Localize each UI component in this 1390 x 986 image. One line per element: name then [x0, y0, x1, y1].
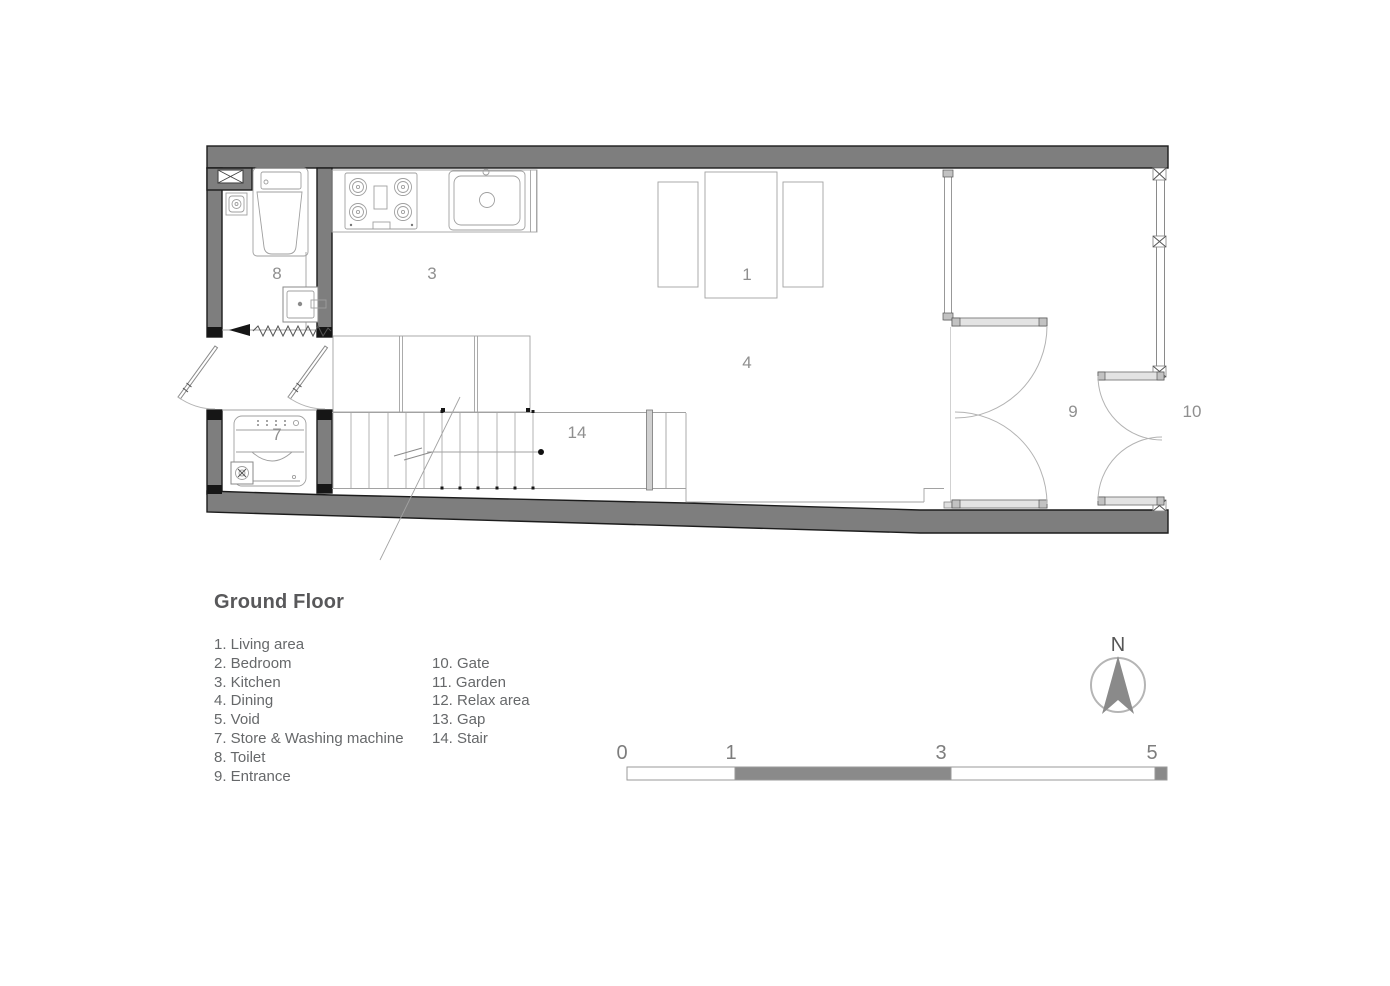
wall-cap	[207, 327, 222, 337]
vent-window-icon	[218, 170, 243, 183]
room-label-stair: 14	[568, 423, 587, 442]
gate-double-door	[1098, 372, 1164, 505]
stairs	[332, 397, 944, 560]
room-label-store: 7	[272, 425, 281, 444]
legend-item: 5. Void	[214, 711, 404, 730]
floor-drain-icon	[231, 462, 253, 484]
legend-item: 1. Living area	[214, 636, 404, 655]
table-center	[705, 172, 777, 298]
floor-plan-sheet: 8 3 1 4 14 7 9 10 N 0 1 3 5 Ground Floor…	[0, 0, 1390, 986]
floor-plan-drawing: 8 3 1 4 14 7 9 10 N	[0, 0, 1390, 986]
stair-direction-dot	[538, 449, 544, 455]
legend-item: 7. Store & Washing machine	[214, 730, 404, 749]
room-label-toilet: 8	[272, 264, 281, 283]
stair-break-line	[380, 397, 460, 560]
legend-item: 4. Dining	[214, 692, 404, 711]
washing-machine-icon	[231, 416, 306, 486]
left-wall-lower	[207, 410, 222, 494]
legend-item: 10. Gate	[432, 655, 530, 674]
scale-label-0: 0	[616, 742, 627, 765]
sofa-left	[658, 182, 698, 287]
tread-nosing-dots	[441, 410, 535, 490]
side-entrance-doors	[178, 346, 328, 410]
stove-icon	[345, 173, 417, 229]
scale-bar-dark-segment	[735, 767, 951, 780]
room-label-living: 1	[742, 265, 751, 284]
kitchen-counter	[332, 169, 537, 232]
legend-title: Ground Floor	[214, 591, 344, 614]
room-label-dining: 4	[742, 353, 751, 372]
room-label-gate: 10	[1183, 402, 1202, 421]
scale-label-5: 5	[1146, 742, 1157, 765]
room-label-kitchen: 3	[427, 264, 436, 283]
legend-item: 9. Entrance	[214, 768, 404, 787]
door-leaf	[288, 346, 328, 399]
scale-label-1: 1	[725, 742, 736, 765]
legend-item: 2. Bedroom	[214, 655, 404, 674]
entrance-partition	[943, 170, 970, 508]
bottom-wall	[207, 491, 1168, 533]
toilet-room	[222, 168, 331, 336]
legend-item: 3. Kitchen	[214, 674, 404, 693]
room-label-entrance: 9	[1068, 402, 1077, 421]
living-furniture	[658, 172, 823, 298]
wall-cap	[207, 485, 222, 494]
direction-arrow-icon	[229, 324, 250, 336]
room-labels: 8 3 1 4 14 7 9 10	[272, 264, 1201, 444]
scale-bar	[627, 767, 1167, 780]
washbasin-small-icon	[226, 193, 247, 215]
legend-column-1: 1. Living area 2. Bedroom 3. Kitchen 4. …	[214, 636, 404, 786]
top-wall	[207, 146, 1168, 168]
door-leaf	[178, 346, 218, 399]
scale-bar-end-cap	[1155, 767, 1167, 780]
interior-wall-upper	[317, 168, 332, 337]
wall-cap	[317, 484, 332, 493]
legend-item: 14. Stair	[432, 730, 530, 749]
legend: Ground Floor 1. Living area 2. Bedroom 3…	[214, 591, 344, 614]
north-label: N	[1111, 634, 1125, 656]
left-wall-upper	[207, 168, 222, 337]
mullion-icon	[1153, 236, 1166, 247]
scale-label-3: 3	[935, 742, 946, 765]
legend-item: 8. Toilet	[214, 749, 404, 768]
bathtub-icon	[253, 168, 308, 256]
legend-column-2: 10. Gate 11. Garden 12. Relax area 13. G…	[432, 655, 530, 749]
north-arrow-needle-icon	[1102, 656, 1134, 714]
entrance-double-door	[952, 318, 1047, 508]
wall-cap	[317, 410, 332, 420]
glazed-wall-right	[1153, 168, 1166, 511]
interior-wall-lower	[317, 410, 332, 493]
legend-item: 13. Gap	[432, 711, 530, 730]
understair-storage	[333, 336, 530, 412]
kitchen-sink-icon	[449, 169, 525, 230]
mullion-icon	[1153, 168, 1166, 180]
stair-end-panel	[647, 410, 653, 490]
north-arrow: N	[1091, 634, 1145, 714]
wall-cap	[207, 410, 222, 420]
legend-item: 11. Garden	[432, 674, 530, 693]
legend-item: 12. Relax area	[432, 692, 530, 711]
sofa-right	[783, 182, 823, 287]
